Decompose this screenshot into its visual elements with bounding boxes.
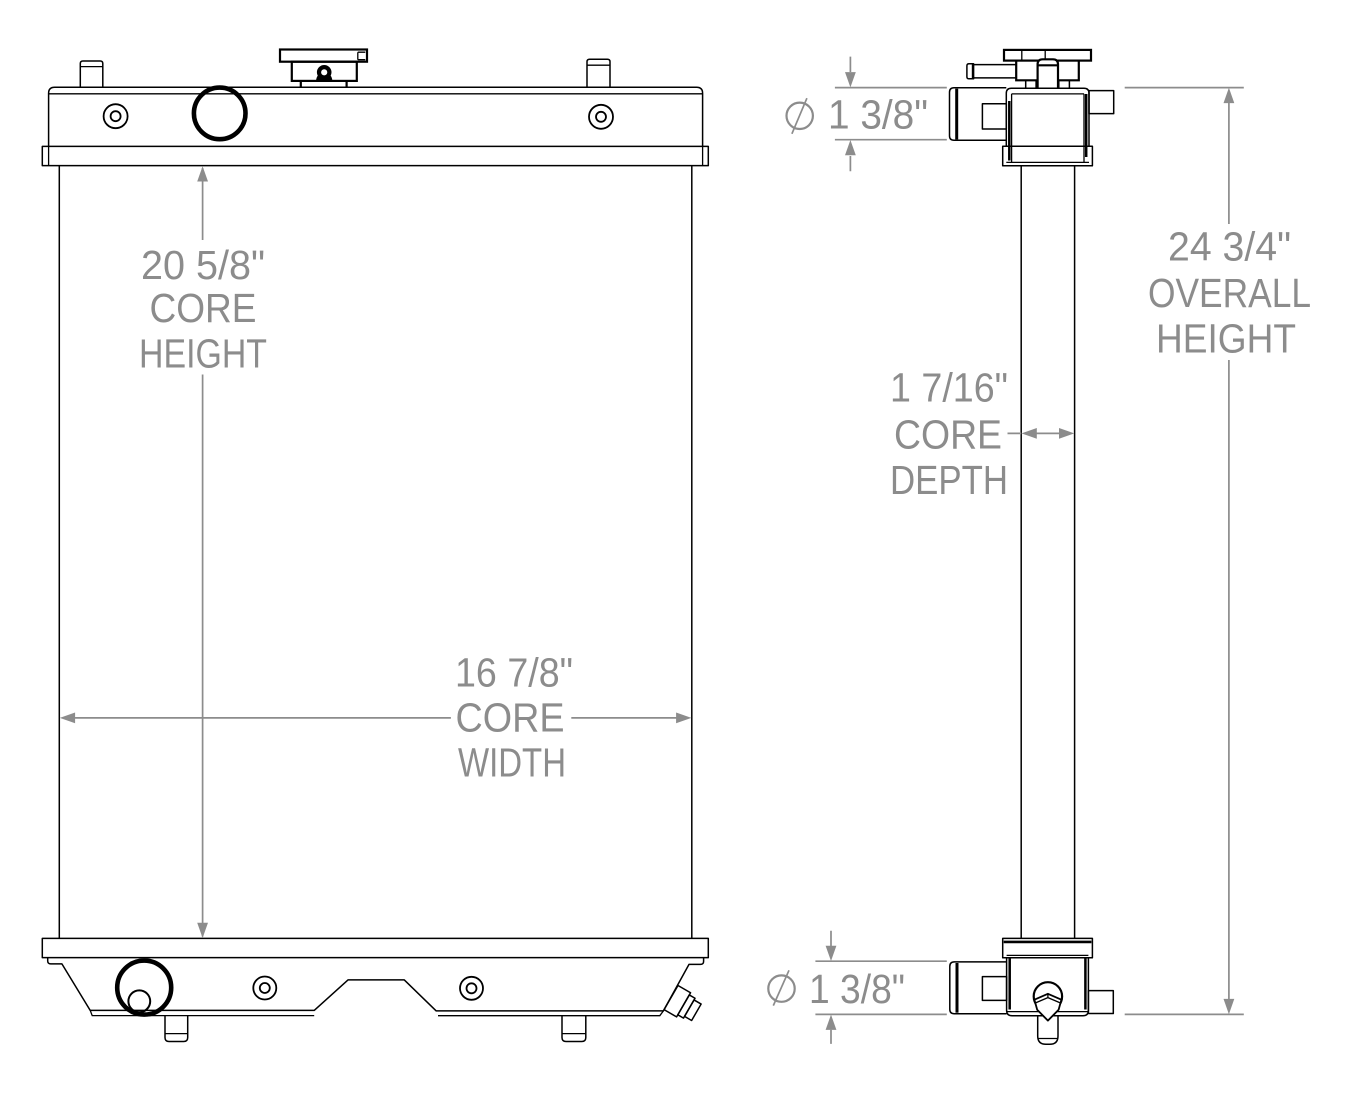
- svg-text:1 7/16": 1 7/16": [890, 365, 1008, 411]
- svg-text:24 3/4": 24 3/4": [1168, 224, 1291, 270]
- svg-text:HEIGHT: HEIGHT: [139, 331, 267, 377]
- svg-text:HEIGHT: HEIGHT: [1156, 315, 1296, 361]
- svg-text:CORE: CORE: [894, 411, 1002, 457]
- svg-text:WIDTH: WIDTH: [458, 739, 566, 785]
- svg-text:1 3/8": 1 3/8": [828, 92, 928, 138]
- svg-text:CORE: CORE: [456, 695, 565, 741]
- svg-text:1 3/8": 1 3/8": [809, 966, 905, 1012]
- svg-text:CORE: CORE: [150, 285, 257, 331]
- svg-text:20 5/8": 20 5/8": [141, 242, 265, 288]
- svg-text:DEPTH: DEPTH: [890, 457, 1008, 503]
- svg-text:OVERALL: OVERALL: [1148, 270, 1311, 316]
- svg-text:16 7/8": 16 7/8": [455, 650, 573, 696]
